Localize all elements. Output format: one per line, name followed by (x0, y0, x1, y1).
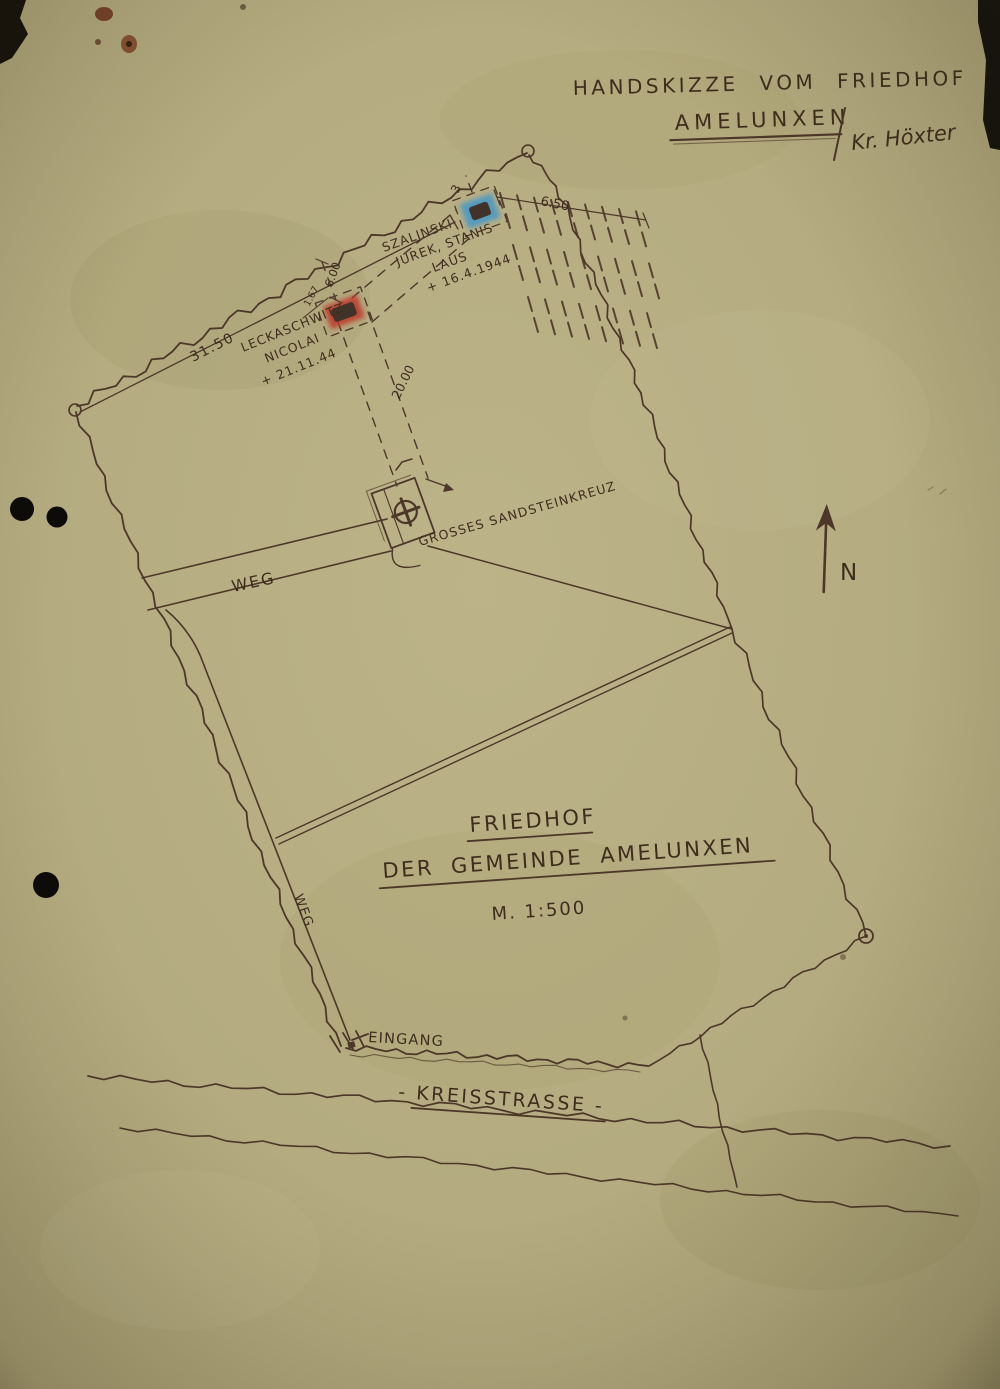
punch-hole (47, 507, 68, 528)
stain-spot (240, 4, 246, 10)
punch-hole (10, 497, 34, 521)
stain-spot (840, 954, 846, 960)
corner-marker-dot (864, 934, 868, 938)
scanned-sketch-page: HANDSKIZZE VOM FRIEDHOF AMELUNXEN Kr. Hö… (0, 0, 1000, 1389)
stain-spot (623, 1016, 628, 1021)
north-label: N (840, 560, 857, 586)
punch-hole (33, 872, 59, 898)
stain-spot (95, 39, 101, 45)
cemetery-sketch-map: HANDSKIZZE VOM FRIEDHOF AMELUNXEN Kr. Hö… (0, 0, 1000, 1389)
stain-spot (126, 41, 132, 47)
stain-spot (95, 7, 113, 21)
